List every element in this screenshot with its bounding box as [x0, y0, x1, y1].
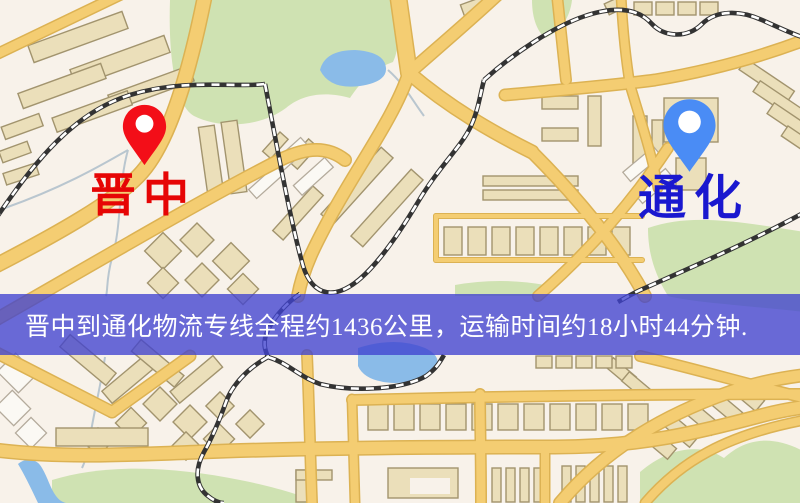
- map-background: [0, 0, 800, 503]
- destination-marker: [661, 97, 718, 174]
- route-info-text: 晋中到通化物流专线全程约1436公里，运输时间约18小时44分钟.: [0, 307, 748, 343]
- logistics-map-screenshot: 晋中 通化 晋中到通化物流专线全程约1436公里，运输时间约18小时44分钟.: [0, 0, 800, 503]
- origin-pin-icon: [121, 102, 168, 168]
- destination-pin-icon: [661, 97, 718, 174]
- destination-label: 通化: [638, 175, 750, 223]
- origin-label: 晋中: [90, 173, 196, 219]
- route-info-banner: 晋中到通化物流专线全程约1436公里，运输时间约18小时44分钟.: [0, 294, 800, 355]
- origin-marker: [121, 102, 168, 168]
